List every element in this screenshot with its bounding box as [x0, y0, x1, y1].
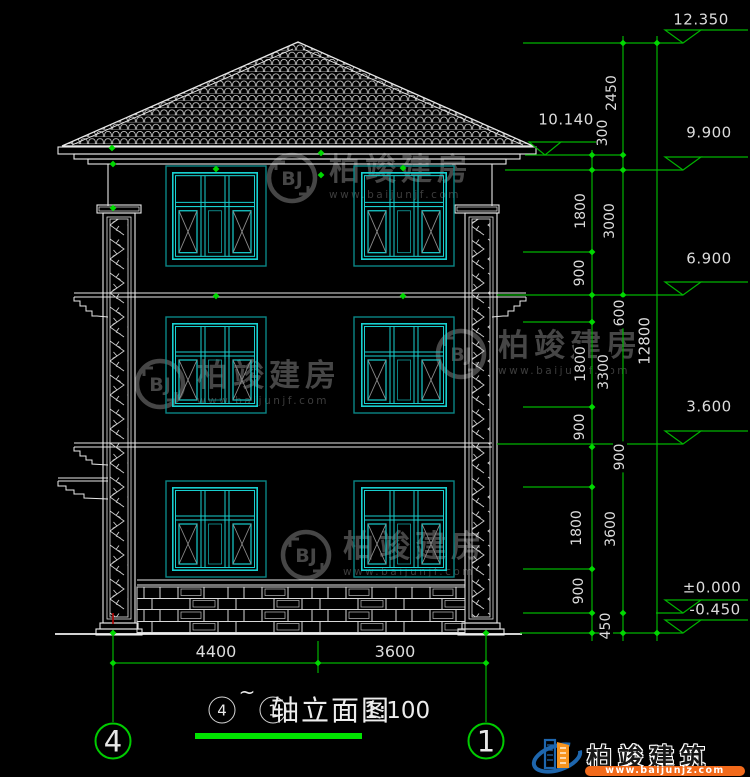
site-logo-url-text: www.baijunjz.com: [605, 766, 724, 776]
elevation-value: ±0.000: [683, 581, 742, 596]
dim-value: 1800: [570, 508, 584, 548]
cad-elevation-screenshot: BJ 柏竣建房 www.baijunjf.com BJ 柏竣建房 www.bai…: [0, 0, 750, 777]
axis-bubble-4: 4: [95, 723, 132, 760]
elevation-value: 3.600: [686, 400, 731, 415]
dim-value: 3300: [597, 352, 611, 392]
title-axis-circle-from: 4: [209, 697, 236, 724]
site-logo-icon: [530, 733, 586, 777]
dim-value: 450: [599, 611, 613, 642]
elevation-value: 10.140: [538, 113, 594, 128]
dim-value: 1800: [574, 191, 588, 231]
dim-value: 3000: [603, 201, 617, 241]
dim-value: 900: [573, 258, 587, 289]
annotation-text-layer: 12.350 10.140 9.900 6.900 3.600 ±0.000 -…: [0, 0, 750, 777]
elevation-value: -0.450: [689, 603, 740, 618]
site-logo-url: www.baijunjz.com: [585, 766, 745, 776]
elevation-value: 9.900: [686, 126, 731, 141]
axis-bubble-1: 1: [468, 723, 505, 760]
dim-value: 1800: [574, 344, 588, 384]
elevation-value: 6.900: [686, 252, 731, 267]
title-underline: [195, 733, 362, 739]
dim-value: 900: [573, 412, 587, 443]
axis-number: 1: [477, 724, 495, 758]
dim-value-overall: 12800: [638, 315, 653, 367]
dim-value: 300: [596, 118, 610, 149]
drawing-scale: 1:100: [364, 698, 430, 724]
axis-number: 4: [104, 724, 122, 758]
site-logo: 柏竣建筑 www.baijunjz.com: [530, 733, 748, 777]
dim-value: 3600: [604, 509, 618, 549]
dim-value-bay: 3600: [375, 644, 416, 660]
dim-value: 900: [572, 576, 586, 607]
dim-value: 900: [613, 442, 627, 473]
dim-value-bay: 4400: [196, 644, 237, 660]
elevation-value: 12.350: [673, 13, 729, 28]
title-tilde: ~: [239, 680, 256, 704]
dim-value: 2450: [605, 73, 619, 113]
title-axis-number: 4: [217, 701, 227, 719]
dim-value: 600: [613, 298, 627, 329]
